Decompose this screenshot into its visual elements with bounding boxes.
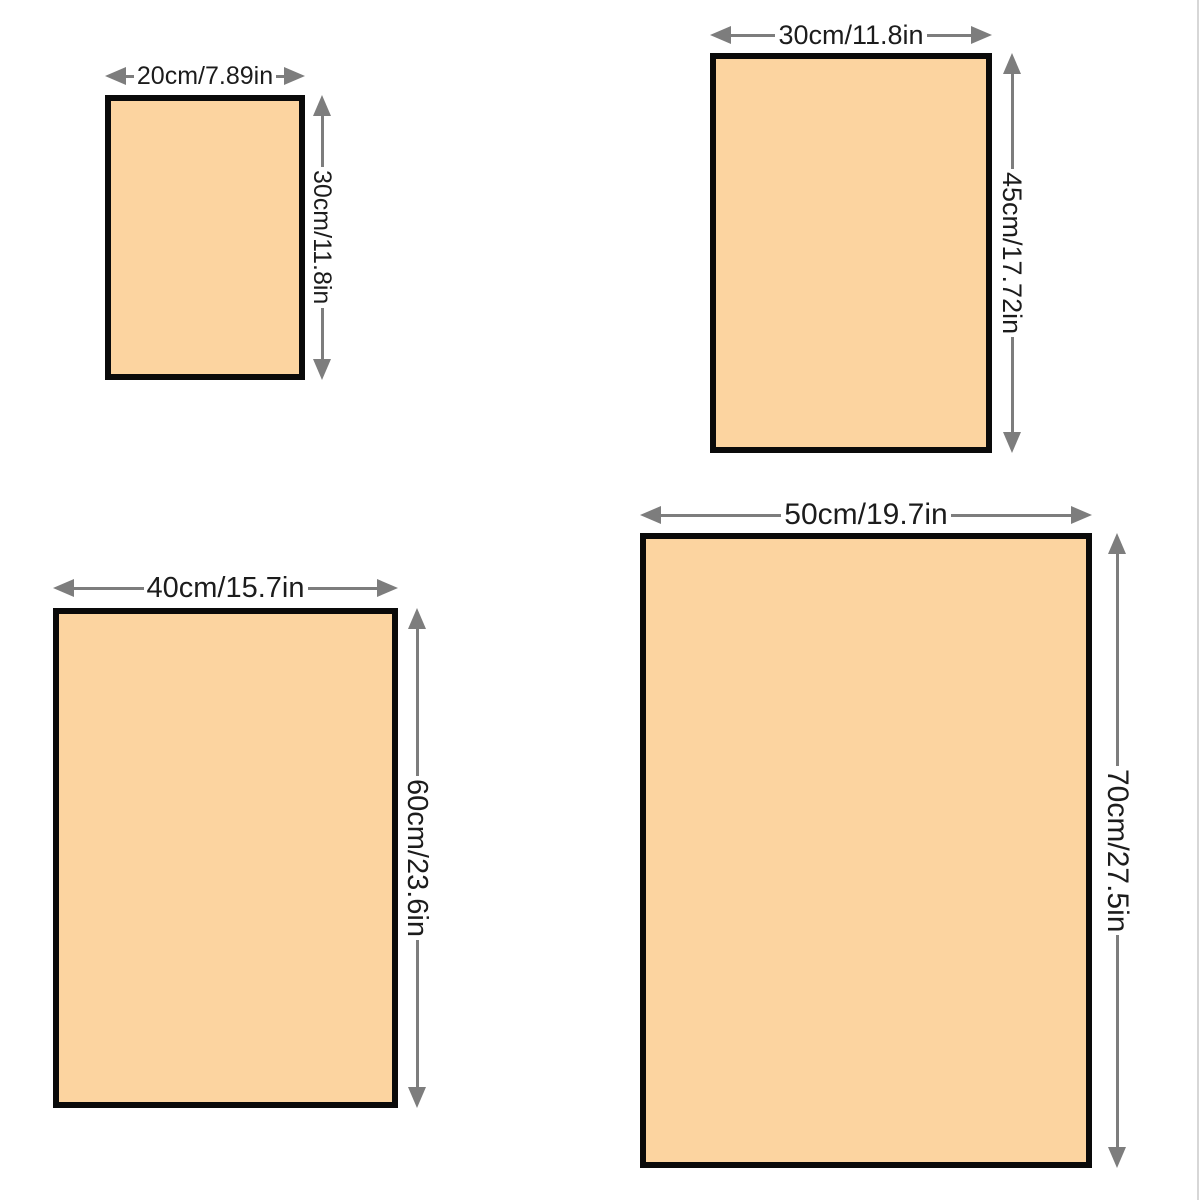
height-dimension-label: 45cm/17.72in — [998, 169, 1026, 337]
arrowhead-down-icon — [408, 1087, 426, 1108]
canvas-rectangle-30x45 — [710, 53, 992, 453]
arrow-line — [1116, 554, 1119, 766]
width-dimension-label: 30cm/11.8in — [775, 21, 926, 49]
width-dimension-arrow: 20cm/7.89in — [105, 62, 305, 90]
arrow-line — [1011, 337, 1014, 432]
arrowhead-up-icon — [313, 95, 331, 116]
arrow-line — [321, 308, 324, 359]
canvas-rectangle-50x70 — [640, 533, 1092, 1168]
width-dimension-label: 40cm/15.7in — [144, 573, 308, 603]
height-dimension-label: 30cm/11.8in — [309, 167, 335, 307]
arrowhead-up-icon — [408, 608, 426, 629]
arrowhead-left-icon — [640, 506, 661, 524]
arrowhead-down-icon — [1108, 1147, 1126, 1168]
arrowhead-down-icon — [313, 359, 331, 380]
arrow-line — [276, 75, 284, 78]
height-dimension-arrow: 70cm/27.5in — [1103, 533, 1131, 1168]
arrow-line — [74, 587, 144, 590]
width-dimension-arrow: 50cm/19.7in — [640, 501, 1092, 529]
canvas-rectangle-40x60 — [53, 608, 398, 1108]
height-dimension-label: 70cm/27.5in — [1101, 766, 1133, 935]
arrowhead-left-icon — [710, 26, 731, 44]
arrow-line — [416, 629, 419, 776]
arrow-line — [416, 940, 419, 1087]
arrow-line — [661, 514, 781, 517]
canvas-rectangle-20x30 — [105, 95, 305, 380]
arrowhead-right-icon — [971, 26, 992, 44]
arrow-line — [1011, 74, 1014, 169]
image-right-border — [1197, 0, 1199, 1200]
arrow-line — [321, 116, 324, 167]
height-dimension-arrow: 60cm/23.6in — [403, 608, 431, 1108]
arrowhead-down-icon — [1003, 432, 1021, 453]
arrow-line — [1116, 935, 1119, 1147]
arrowhead-up-icon — [1108, 533, 1126, 554]
height-dimension-label: 60cm/23.6in — [402, 776, 432, 940]
arrowhead-up-icon — [1003, 53, 1021, 74]
height-dimension-arrow: 45cm/17.72in — [998, 53, 1026, 453]
width-dimension-arrow: 30cm/11.8in — [710, 21, 992, 49]
arrow-line — [308, 587, 378, 590]
arrowhead-left-icon — [105, 67, 126, 85]
arrowhead-left-icon — [53, 579, 74, 597]
arrow-line — [731, 34, 775, 37]
height-dimension-arrow: 30cm/11.8in — [308, 95, 336, 380]
width-dimension-label: 50cm/19.7in — [781, 499, 950, 531]
size-chart-diagram: 20cm/7.89in 30cm/11.8in 30cm/11.8in 45cm… — [0, 0, 1200, 1200]
width-dimension-label: 20cm/7.89in — [134, 63, 276, 89]
arrow-line — [927, 34, 971, 37]
arrow-line — [126, 75, 134, 78]
arrow-line — [951, 514, 1071, 517]
width-dimension-arrow: 40cm/15.7in — [53, 574, 398, 602]
arrowhead-right-icon — [377, 579, 398, 597]
arrowhead-right-icon — [284, 67, 305, 85]
arrowhead-right-icon — [1071, 506, 1092, 524]
